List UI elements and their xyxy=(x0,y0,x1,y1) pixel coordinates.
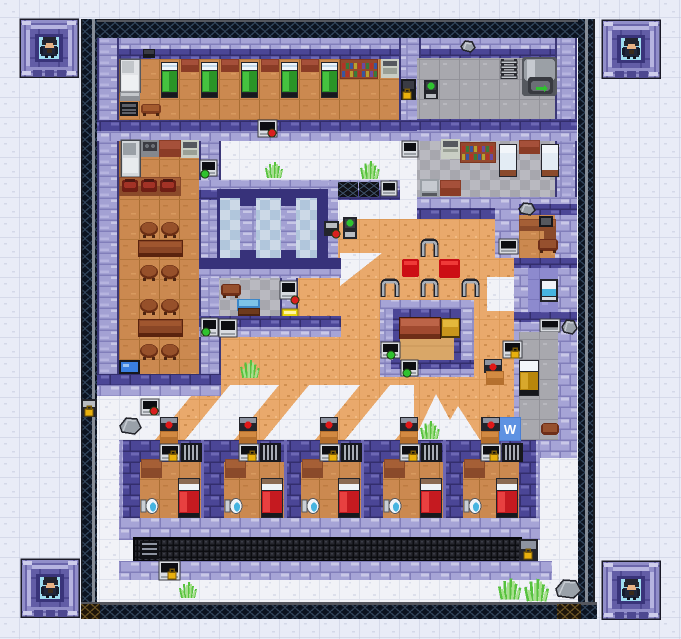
svg-text:W: W xyxy=(504,422,517,437)
